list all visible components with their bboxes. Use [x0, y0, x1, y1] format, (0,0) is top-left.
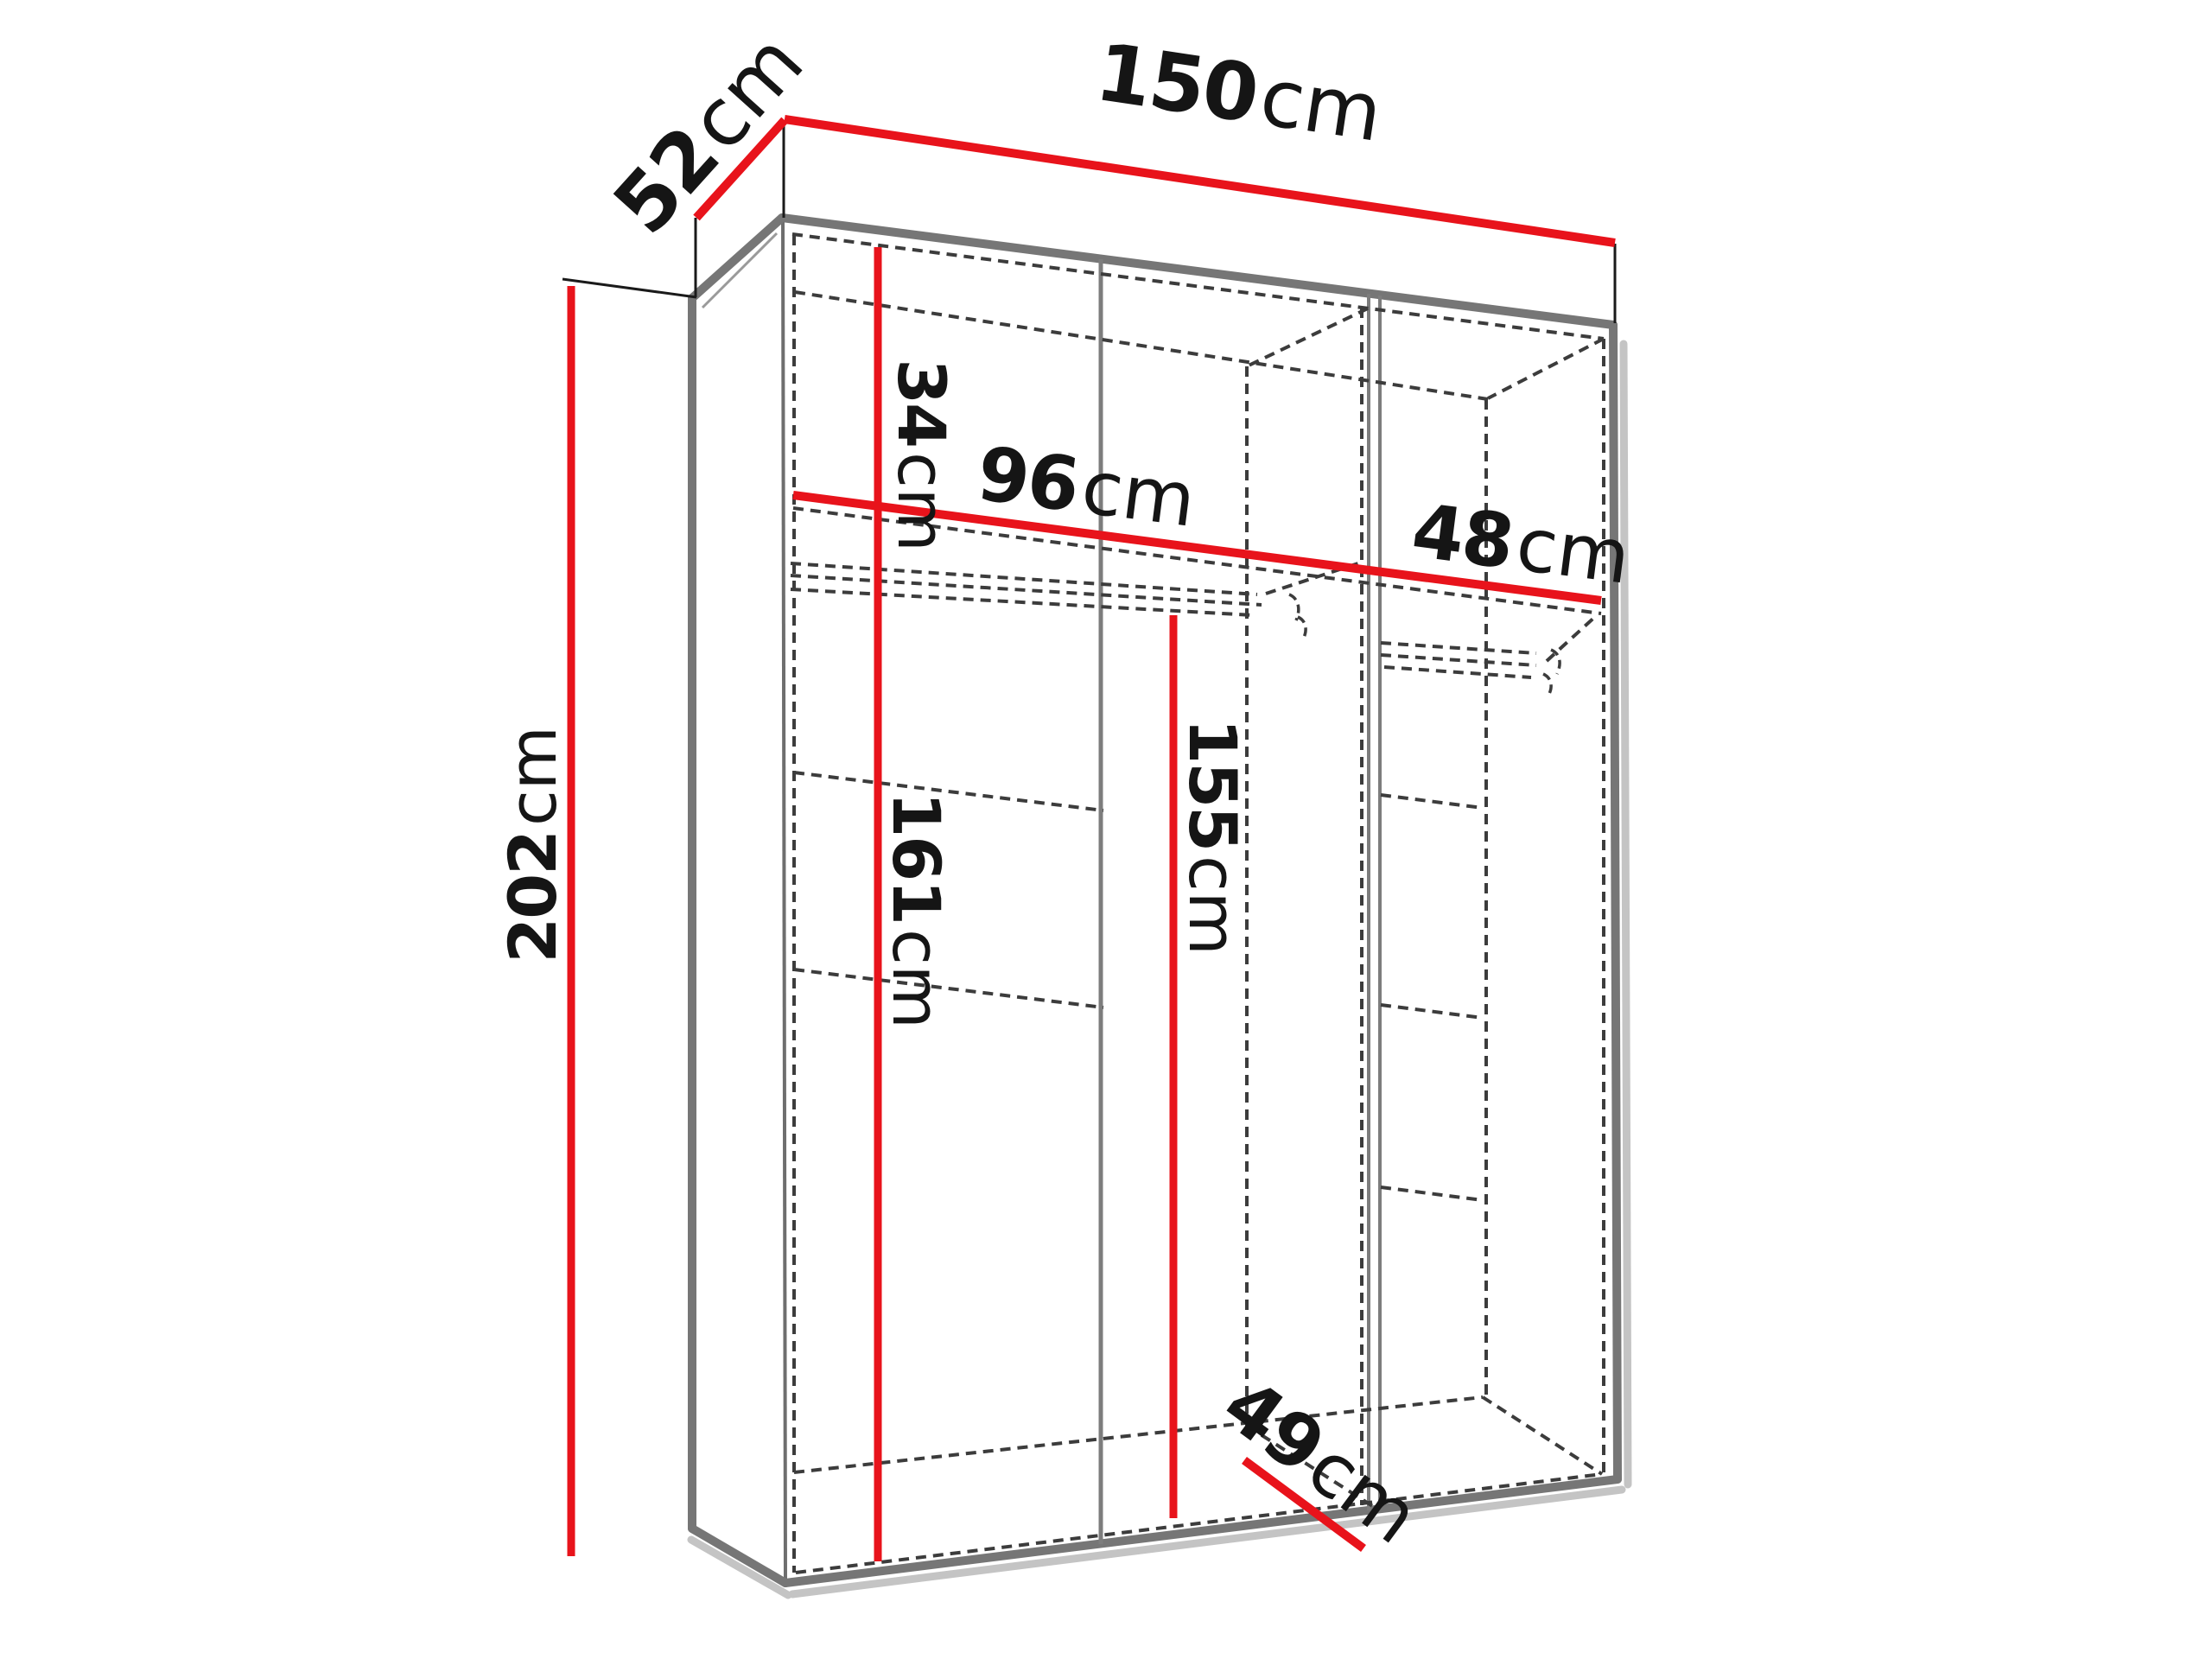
shadow-side-bottom-edge: [691, 1540, 788, 1595]
leader-height: [563, 279, 696, 297]
label-left-hanging-161-unit: cm: [878, 929, 955, 1029]
left-rod-line-3: [791, 589, 1253, 615]
front-right-edge: [1613, 325, 1618, 1479]
label-width-150-unit: cm: [1255, 50, 1388, 160]
label-top-shelf-34: 34 cm: [883, 359, 960, 552]
side-panel-inner-line: [702, 233, 777, 308]
side-panel-top-edge: [692, 218, 782, 298]
wardrobe-body: [692, 218, 1618, 1583]
right-rod-depth-diagonal: [1547, 615, 1597, 661]
label-width-150: 150 cm: [1090, 26, 1388, 160]
label-right-section-48-value: 48: [1408, 488, 1517, 587]
interior-top-front-line: [792, 234, 1604, 339]
label-height-202-unit: cm: [494, 726, 571, 826]
wardrobe-dimension-diagram: 52 cm 150 cm 202 cm 34 cm 96 cm 48 cm 16…: [0, 0, 2212, 1659]
front-bottom-edge: [785, 1479, 1618, 1583]
interior-top-depth-diagonal-right: [1488, 339, 1604, 398]
side-panel-bottom-edge: [692, 1529, 785, 1583]
dimension-line-width-150: [785, 119, 1615, 243]
shadow-bottom-edge: [792, 1490, 1622, 1594]
right-shelf-line-2: [1381, 1005, 1483, 1018]
right-rod-hook-1: [1551, 650, 1560, 674]
label-right-section-48-unit: cm: [1511, 501, 1635, 601]
label-top-shelf-34-unit: cm: [883, 452, 960, 552]
left-rod-hook-1: [1289, 594, 1299, 620]
label-width-150-value: 150: [1090, 26, 1263, 141]
dimension-lines: [571, 119, 1615, 1561]
left-rod-hook-2: [1298, 617, 1306, 639]
label-left-hanging-161-value: 161: [878, 791, 955, 924]
label-middle-hanging-155-unit: cm: [1174, 855, 1251, 956]
floor-depth-diagonal-right: [1483, 1397, 1602, 1474]
interior-top-depth-diagonal-middle: [1247, 308, 1368, 366]
label-height-202-value: 202: [494, 831, 571, 963]
right-rod-line-1: [1381, 643, 1536, 653]
label-left-section-96-value: 96: [973, 431, 1083, 530]
right-rod-hook-2: [1543, 674, 1551, 696]
right-rod-line-2: [1381, 655, 1536, 665]
label-middle-hanging-155-value: 155: [1174, 718, 1251, 850]
right-shelf-line-3: [1381, 1187, 1483, 1200]
label-left-section-96-unit: cm: [1077, 444, 1200, 544]
label-middle-hanging-155: 155 cm: [1174, 718, 1251, 955]
diagram-canvas: 52 cm 150 cm 202 cm 34 cm 96 cm 48 cm 16…: [0, 0, 2212, 1659]
label-left-hanging-161: 161 cm: [878, 791, 955, 1028]
label-top-shelf-34-value: 34: [883, 359, 960, 447]
right-rod-line-3: [1384, 667, 1531, 677]
label-right-section-48: 48 cm: [1408, 488, 1635, 601]
front-left-edge: [783, 218, 785, 1583]
right-shelf-line-1: [1381, 795, 1483, 808]
label-height-202: 202 cm: [494, 726, 571, 963]
floor-front-line: [796, 1474, 1602, 1573]
